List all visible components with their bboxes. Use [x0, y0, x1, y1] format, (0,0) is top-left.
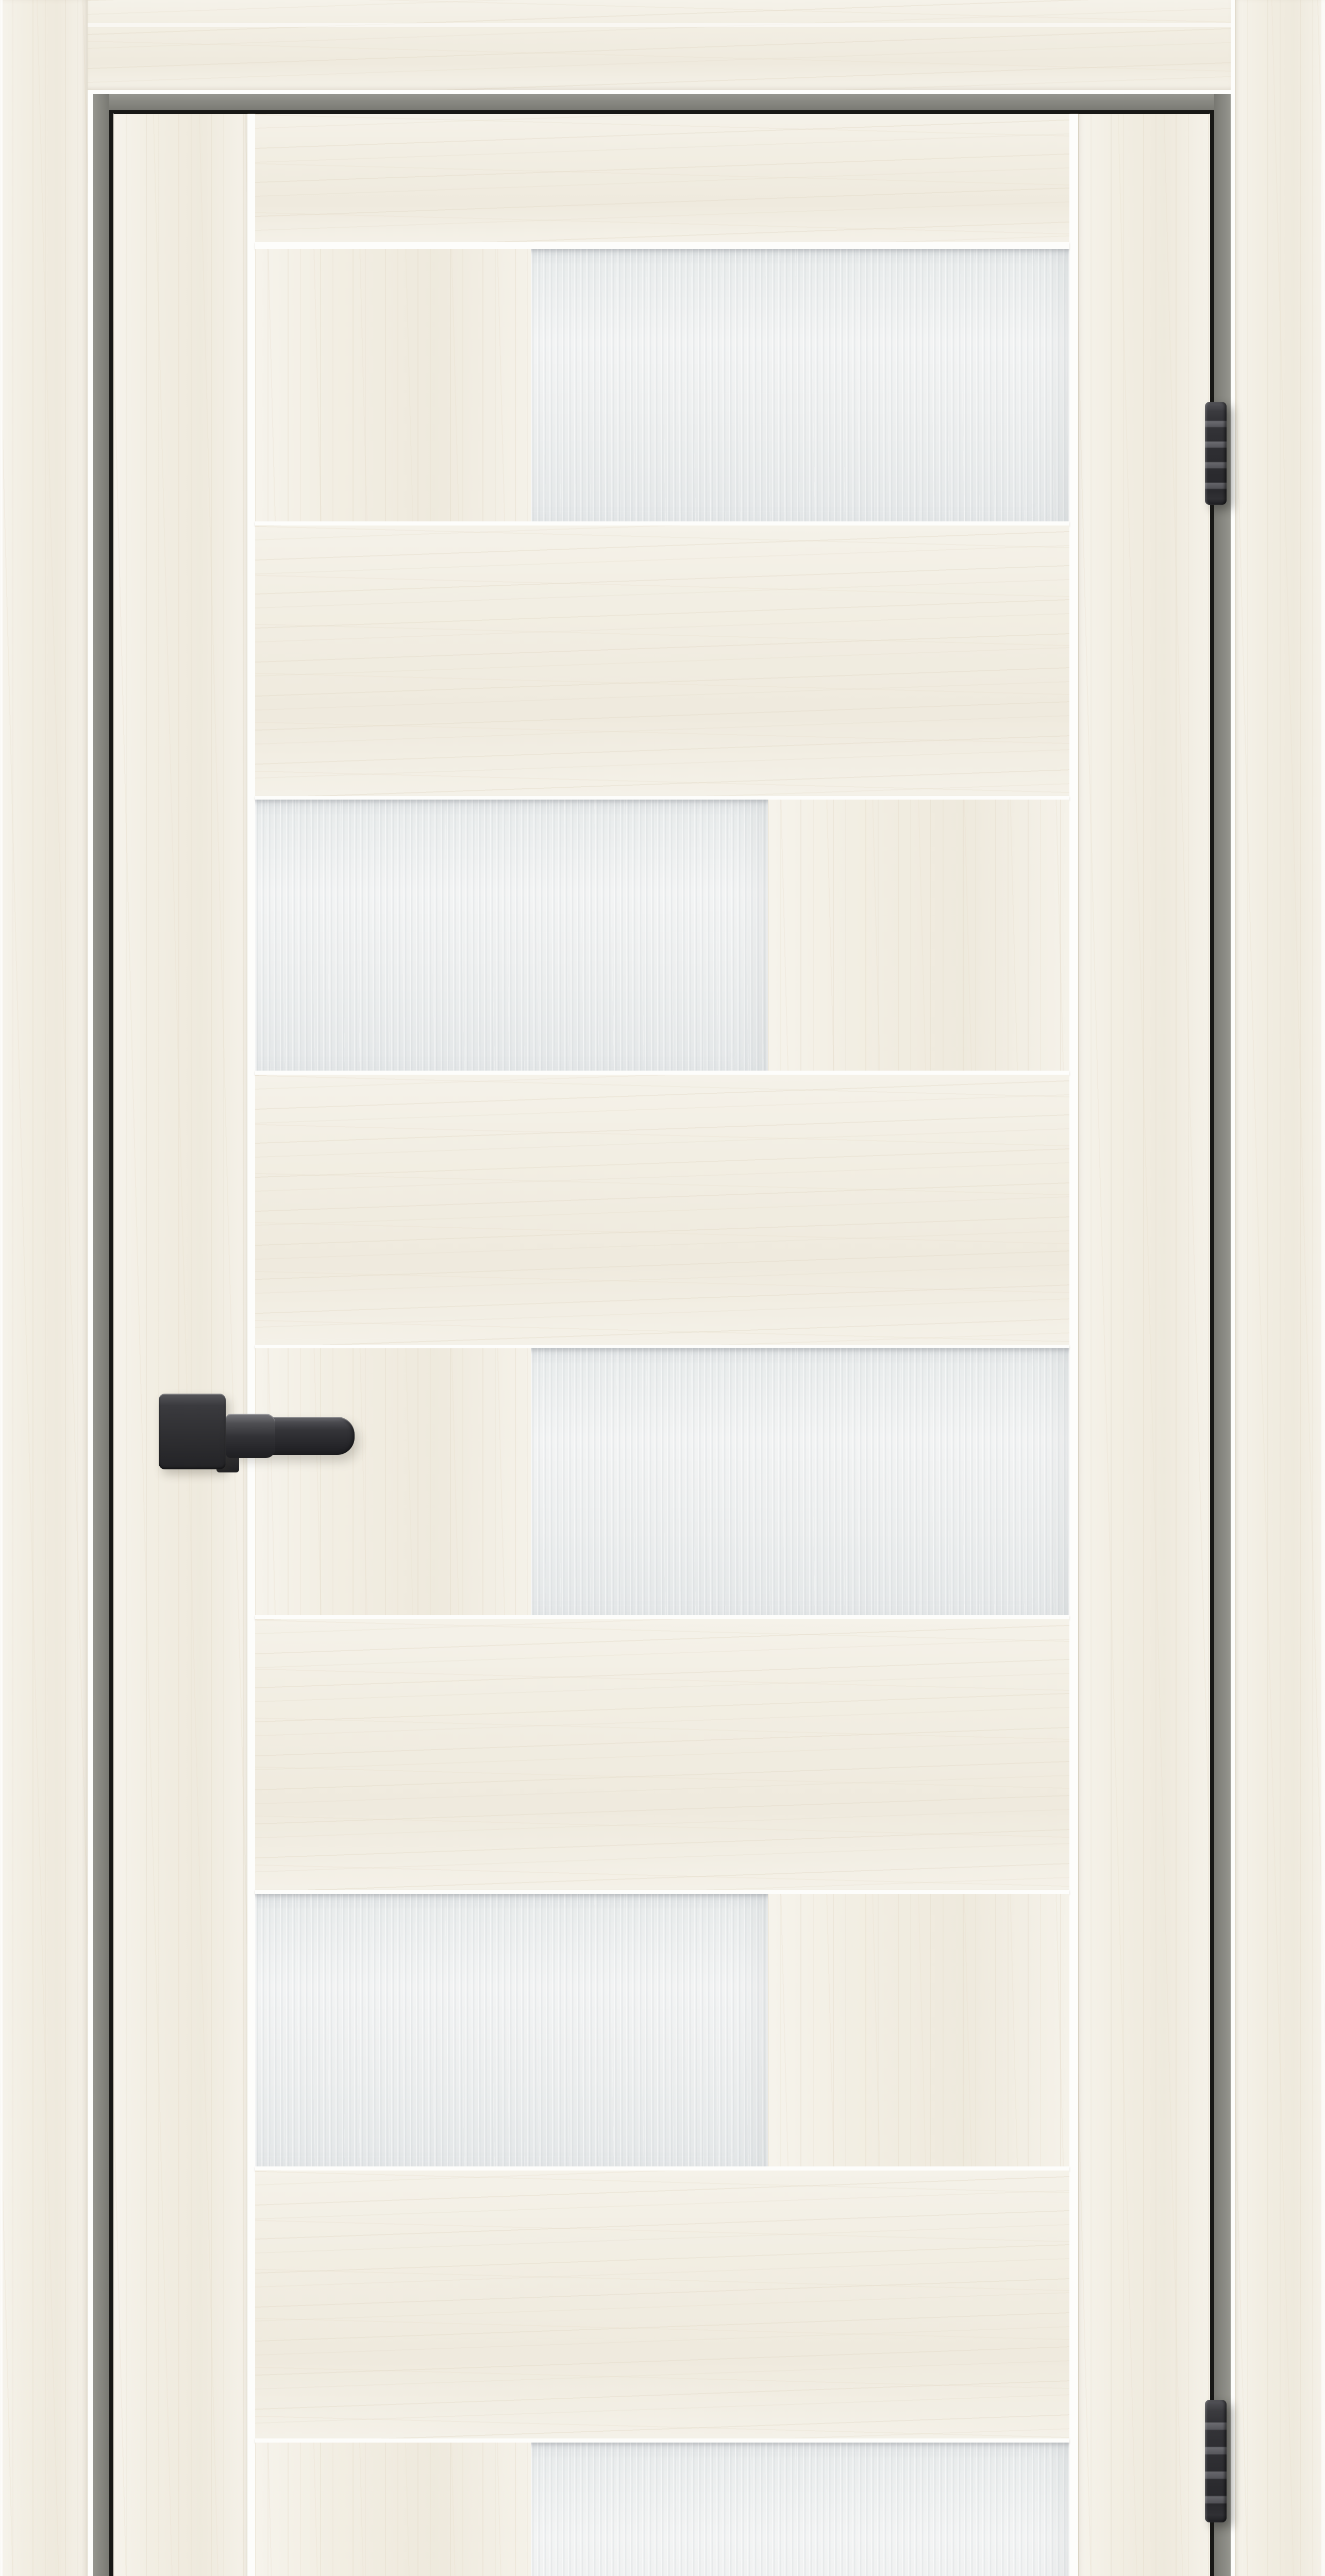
frame-gap-highlight-left [88, 90, 93, 2576]
seam-5 [255, 1615, 1069, 1619]
panel-1-wood-filler [255, 249, 531, 521]
door-stile-right [1078, 114, 1210, 2576]
left-architrave [0, 0, 88, 2576]
panel-3-wood-filler [255, 1348, 531, 1615]
frame-reveal-left [93, 94, 109, 2576]
stile-molding-left [247, 114, 255, 2576]
band-2-wood [255, 1075, 1069, 1345]
panel-1-frosted-glass [531, 249, 1069, 521]
panel-5-row [255, 2443, 1069, 2576]
frame-reveal-top [93, 94, 1231, 110]
panel-3-row [255, 1348, 1069, 1615]
panel-2-row [255, 800, 1069, 1071]
panel-5-wood-filler [255, 2443, 531, 2576]
top-rail-wood [255, 114, 1069, 242]
handle-rose [159, 1394, 226, 1469]
handle-shoulder [226, 1414, 275, 1458]
panel-4-wood-filler [768, 1894, 1069, 2166]
seam-7 [255, 2166, 1069, 2171]
band-1-wood [255, 526, 1069, 796]
stile-molding-right [1069, 114, 1078, 2576]
frame-gap-highlight-right [1231, 0, 1235, 2576]
band-3-row [255, 1619, 1069, 1890]
seam-1 [255, 521, 1069, 526]
divider-top [255, 242, 1069, 249]
seam-6 [255, 1890, 1069, 1894]
band-4-row [255, 2171, 1069, 2438]
panel-2-frosted-glass [255, 800, 768, 1071]
panel-5-frosted-glass [531, 2443, 1069, 2576]
seam-4 [255, 1345, 1069, 1348]
seam-3 [255, 1071, 1069, 1075]
seam-8 [255, 2438, 1069, 2443]
door-center-field [255, 114, 1069, 2576]
panel-4-frosted-glass [255, 1894, 768, 2166]
panel-1-row [255, 249, 1069, 521]
head-architrave [88, 0, 1231, 90]
lintel-profile-groove [88, 23, 1231, 27]
upper-hinge-icon [1205, 402, 1227, 505]
band-4-wood [255, 2171, 1069, 2438]
band-1-row [255, 526, 1069, 796]
door-stile-left [113, 114, 247, 2576]
frame-gap-highlight-top [88, 90, 1235, 94]
door-clearance-gap-left [109, 110, 113, 2576]
panel-2-wood-filler [768, 800, 1069, 1071]
top-rail-row [255, 114, 1069, 242]
lower-hinge-icon [1205, 2400, 1227, 2522]
seam-2 [255, 796, 1069, 800]
door-clearance-gap-top [110, 110, 1213, 114]
panel-4-row [255, 1894, 1069, 2166]
door-leaf [113, 114, 1210, 2576]
band-2-row [255, 1075, 1069, 1345]
panel-3-frosted-glass [531, 1348, 1069, 1615]
band-3-wood [255, 1619, 1069, 1890]
door-product-photo [0, 0, 1325, 2576]
right-architrave [1235, 0, 1325, 2576]
